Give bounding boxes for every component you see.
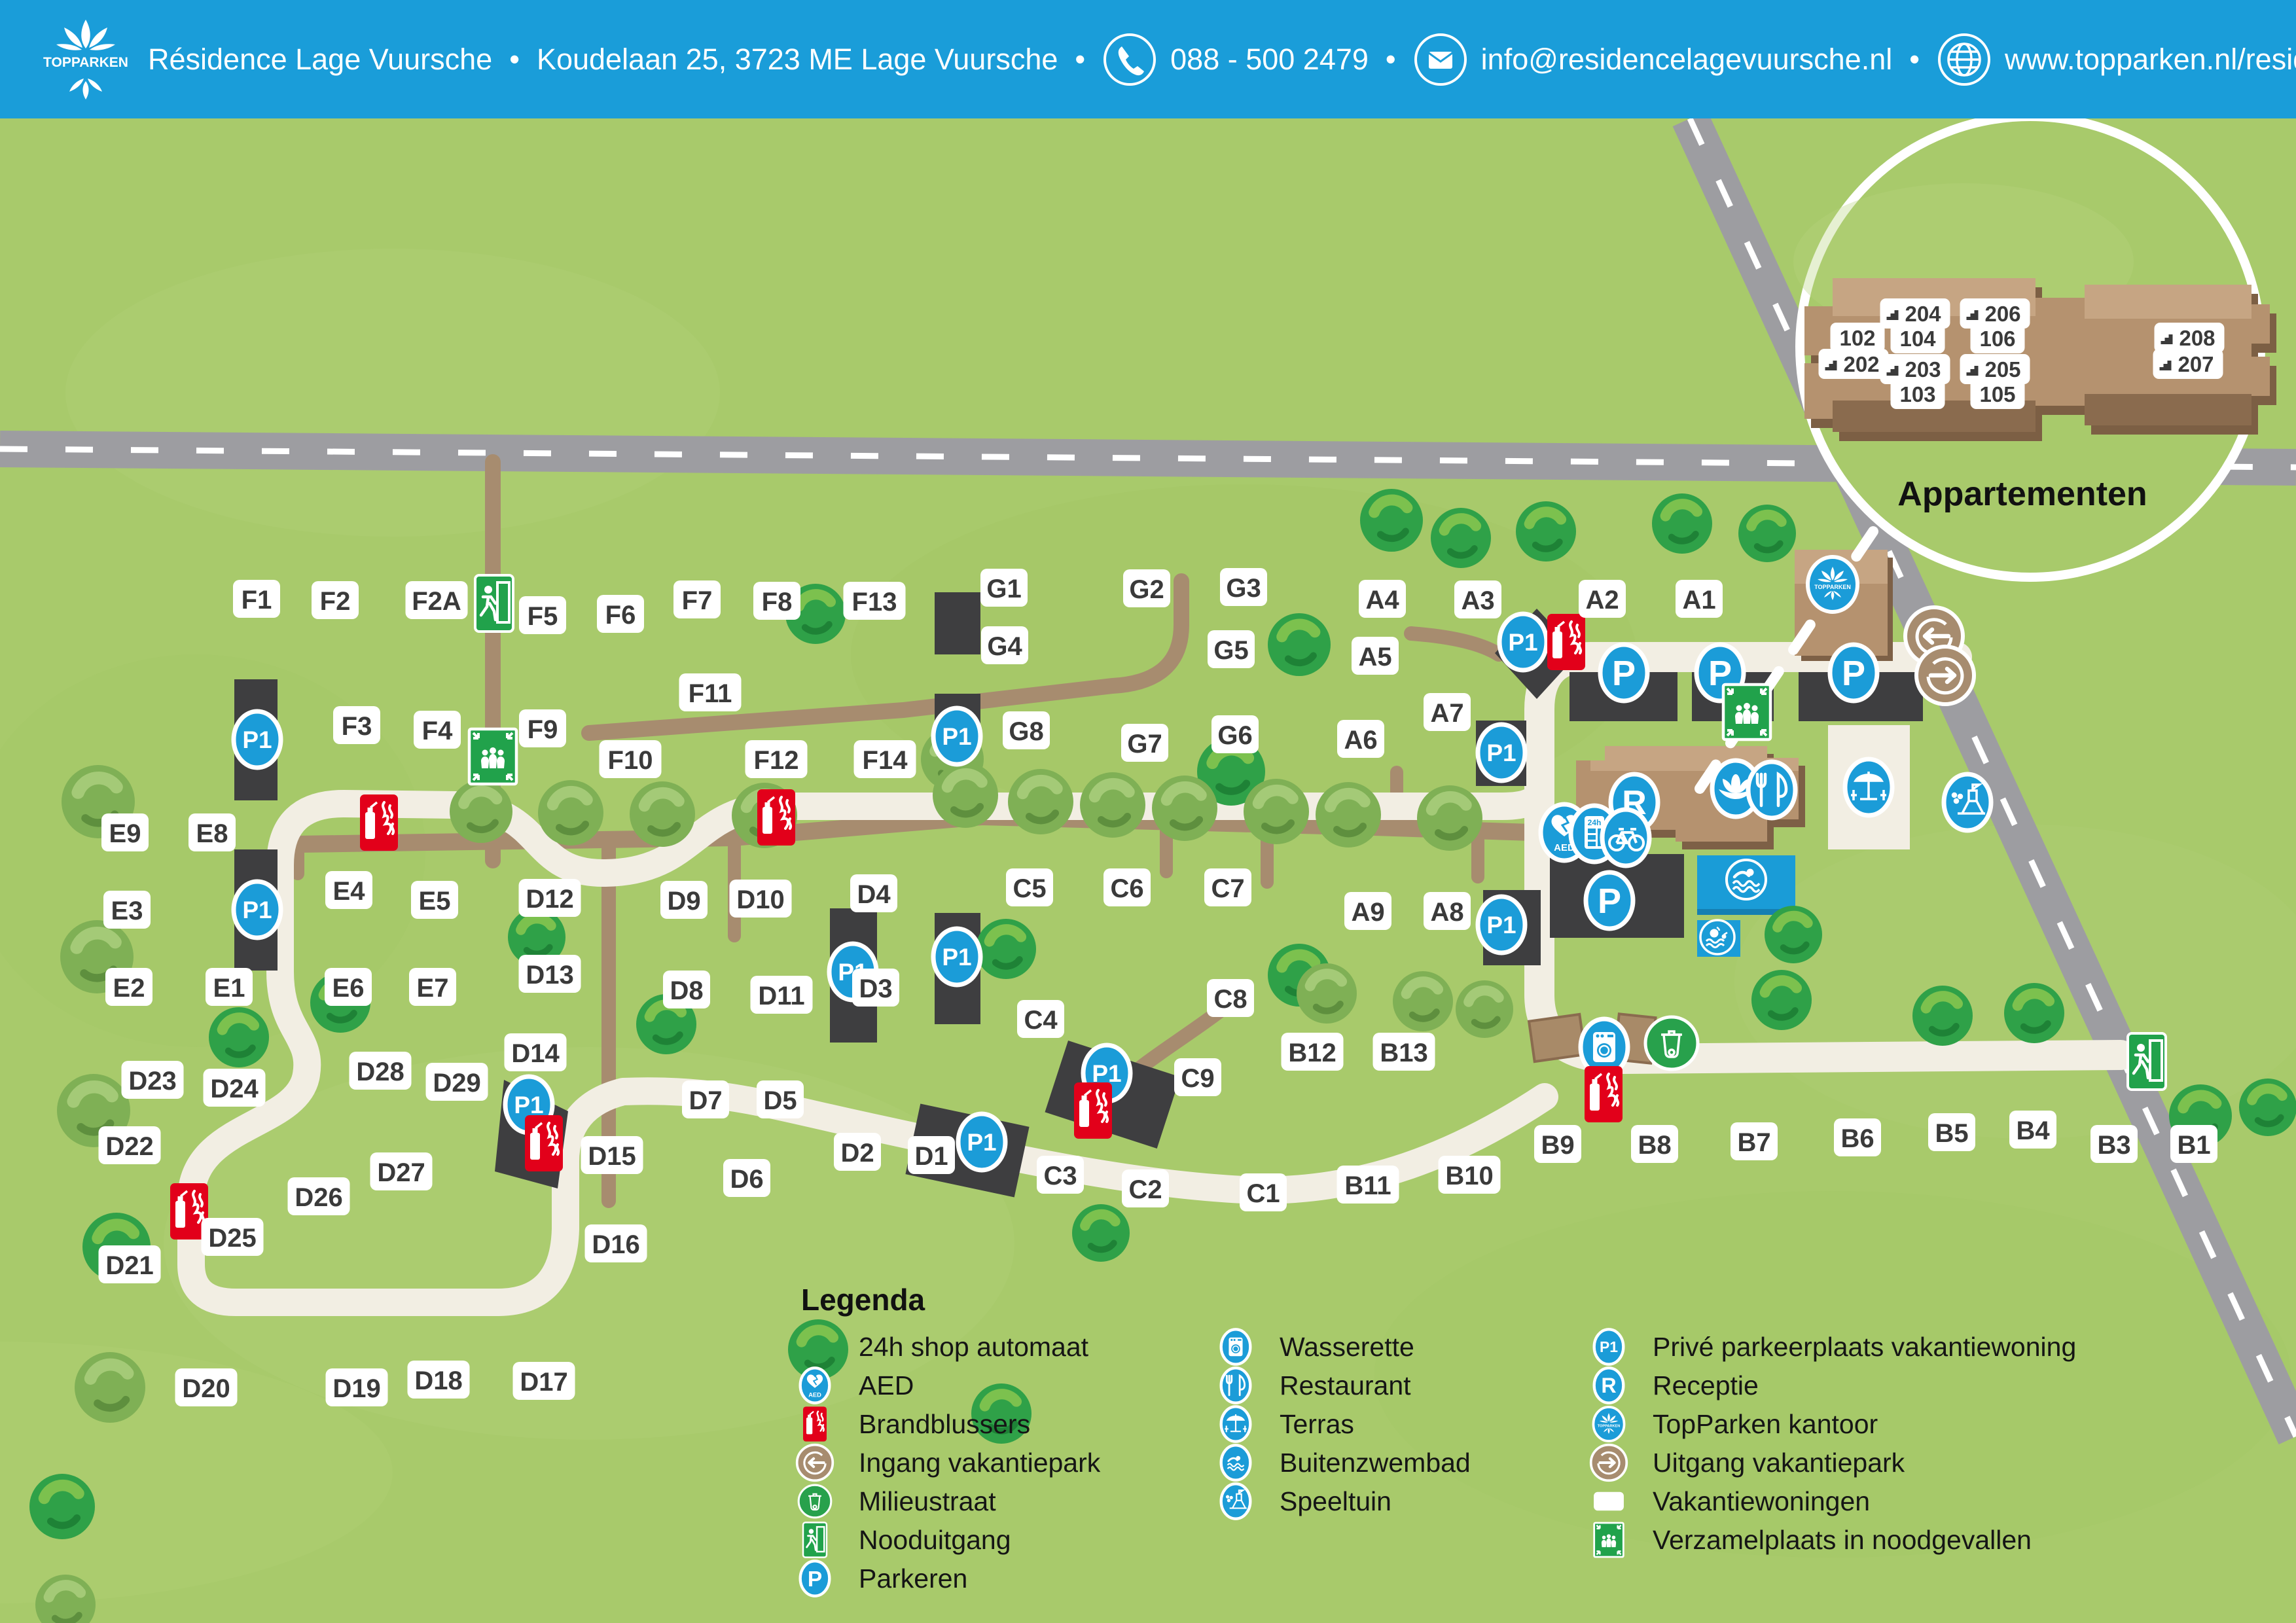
plot-label-E4: E4	[325, 871, 372, 909]
svg-text:B9: B9	[1541, 1131, 1574, 1160]
legend-label: Ingang vakantiepark	[859, 1448, 1101, 1478]
plot-label-B7: B7	[1731, 1122, 1778, 1160]
plot-label-F8: F8	[753, 582, 800, 620]
svg-text:D9: D9	[667, 887, 700, 916]
svg-text:G6: G6	[1217, 721, 1252, 750]
svg-text:G2: G2	[1129, 575, 1164, 604]
p1-icon: P1	[958, 1114, 1005, 1170]
svg-text:E5: E5	[419, 887, 451, 916]
plot-label-D11: D11	[751, 976, 813, 1014]
legend-label: Verzamelplaats in noodgevallen	[1653, 1525, 2032, 1555]
header-bar: TOPPARKEN Résidence Lage Vuursche • Koud…	[0, 0, 2296, 118]
apartment-label-208: 208	[2155, 323, 2225, 353]
svg-text:B5: B5	[1935, 1119, 1968, 1148]
plot-label-C8: C8	[1207, 979, 1254, 1017]
svg-text:B4: B4	[2016, 1116, 2050, 1145]
plot-label-D5: D5	[757, 1080, 804, 1118]
plot-label-F6: F6	[597, 595, 644, 633]
plot-label-B4: B4	[2009, 1111, 2056, 1149]
svg-text:B1: B1	[2177, 1131, 2210, 1160]
tree	[1008, 769, 1073, 834]
legend-label: Privé parkeerplaats vakantiewoning	[1653, 1332, 2076, 1362]
plot-label-F9: F9	[519, 709, 566, 747]
tree	[29, 1474, 95, 1539]
legend-label: Restaurant	[1280, 1370, 1411, 1400]
svg-text:P1: P1	[242, 897, 272, 923]
plot-label-G3: G3	[1220, 568, 1267, 606]
svg-text:F2: F2	[320, 587, 351, 616]
svg-text:F8: F8	[762, 588, 793, 616]
svg-text:G8: G8	[1009, 717, 1043, 746]
plot-label-B3: B3	[2090, 1125, 2138, 1163]
tree	[1072, 1204, 1130, 1262]
plot-label-D16: D16	[585, 1224, 647, 1262]
svg-text:P1: P1	[942, 944, 971, 971]
legend-item: R Receptie	[1594, 1368, 1759, 1402]
svg-text:F7: F7	[682, 586, 713, 615]
svg-text:G7: G7	[1127, 730, 1162, 758]
svg-text:C9: C9	[1181, 1064, 1214, 1093]
svg-text:B11: B11	[1344, 1171, 1391, 1200]
plot-label-E5: E5	[411, 881, 458, 919]
svg-text:D24: D24	[210, 1075, 259, 1103]
svg-text:D3: D3	[859, 974, 892, 1003]
svg-text:C3: C3	[1043, 1162, 1077, 1190]
uitgang-icon	[1591, 1445, 1627, 1481]
plot-label-D14: D14	[505, 1033, 567, 1071]
tree	[1738, 505, 1796, 562]
svg-text:A8: A8	[1430, 898, 1463, 927]
plot-label-C6: C6	[1103, 868, 1151, 906]
plot-label-G1: G1	[980, 569, 1028, 607]
legend-item: P Parkeren	[800, 1561, 968, 1596]
svg-text:P: P	[1842, 654, 1865, 693]
p-icon: P	[1600, 645, 1647, 701]
svg-text:104: 104	[1899, 327, 1936, 351]
svg-text:C8: C8	[1213, 985, 1247, 1014]
svg-text:G1: G1	[986, 575, 1021, 603]
plot-label-G8: G8	[1003, 711, 1050, 749]
legend-label: AED	[859, 1370, 914, 1400]
svg-text:D7: D7	[689, 1086, 722, 1115]
milieu-icon	[798, 1485, 831, 1518]
svg-text:P1: P1	[1600, 1338, 1618, 1355]
topparken-icon: TOPPARKEN	[1593, 1407, 1624, 1441]
brand-icon	[1585, 1066, 1623, 1122]
plot-label-D4: D4	[850, 874, 897, 912]
plot-label-D2: D2	[834, 1133, 881, 1171]
exit-icon	[475, 575, 513, 632]
svg-text:D14: D14	[511, 1039, 560, 1068]
plot-label-B13: B13	[1373, 1033, 1435, 1071]
zwembad-icon	[1221, 1445, 1251, 1480]
svg-text:D5: D5	[763, 1086, 797, 1115]
apartment-label-207: 207	[2153, 349, 2223, 379]
legend-label: Uitgang vakantiepark	[1653, 1448, 1905, 1478]
svg-text:D18: D18	[414, 1366, 462, 1395]
plot-label-F10: F10	[600, 740, 662, 778]
svg-text:E2: E2	[113, 974, 145, 1003]
svg-text:P1: P1	[967, 1129, 996, 1156]
svg-text:C5: C5	[1013, 874, 1046, 903]
tree	[1456, 980, 1513, 1038]
vakantie-icon	[1594, 1492, 1624, 1511]
inset-title: Appartementen	[1897, 475, 2147, 513]
assembly-icon	[1594, 1523, 1624, 1557]
ingang-icon	[797, 1445, 833, 1481]
svg-text:A4: A4	[1365, 586, 1399, 615]
svg-text:F1: F1	[242, 586, 272, 615]
legend-label: TopParken kantoor	[1653, 1409, 1878, 1439]
r-icon: R	[1594, 1368, 1624, 1402]
separator: •	[1386, 43, 1396, 77]
p1-icon: P1	[234, 711, 281, 768]
p1-icon: P1	[1594, 1329, 1624, 1364]
tree	[538, 780, 603, 846]
p-icon: P	[1586, 872, 1633, 929]
svg-text:F11: F11	[689, 679, 732, 708]
svg-text:B8: B8	[1638, 1131, 1671, 1160]
plot-label-D29: D29	[426, 1063, 488, 1101]
restaurant-icon	[1748, 762, 1795, 818]
plot-label-F13: F13	[844, 582, 906, 620]
svg-text:F5: F5	[528, 602, 558, 631]
legend-label: Buitenzwembad	[1280, 1448, 1471, 1478]
plot-label-F1: F1	[233, 580, 280, 618]
svg-text:24h: 24h	[1588, 818, 1602, 827]
aed-icon: AED	[800, 1368, 830, 1402]
tree	[450, 780, 512, 843]
plot-label-C5: C5	[1006, 868, 1053, 906]
legend-label: Wasserette	[1280, 1332, 1414, 1362]
tree	[1268, 613, 1331, 676]
park-name: Résidence Lage Vuursche	[148, 43, 492, 77]
tree	[1152, 776, 1217, 841]
svg-text:F3: F3	[342, 712, 372, 741]
p1-icon: P1	[234, 882, 281, 938]
plot-label-D24: D24	[204, 1069, 266, 1107]
tree	[2004, 983, 2064, 1043]
brand-icon	[803, 1406, 827, 1441]
svg-text:B3: B3	[2097, 1131, 2130, 1160]
exit-icon	[2128, 1033, 2166, 1090]
svg-text:C6: C6	[1110, 874, 1143, 903]
plot-label-G4: G4	[981, 626, 1028, 664]
plot-label-D23: D23	[122, 1061, 184, 1099]
svg-text:B10: B10	[1445, 1162, 1493, 1190]
svg-text:P1: P1	[514, 1092, 543, 1118]
apartment-label-106: 106	[1971, 323, 2025, 353]
svg-text:D10: D10	[736, 885, 784, 914]
phone-number: 088 - 500 2479	[1170, 43, 1369, 77]
email-link[interactable]: info@residencelagevuursche.nl	[1481, 43, 1893, 77]
p1-icon: P1	[1499, 614, 1547, 670]
plot-label-A3: A3	[1454, 580, 1501, 618]
website-link[interactable]: www.topparken.nl/residence-lage-vuursche	[2005, 43, 2296, 77]
plot-label-C1: C1	[1240, 1173, 1287, 1211]
svg-text:D23: D23	[128, 1067, 176, 1096]
svg-text:B6: B6	[1840, 1124, 1874, 1153]
plot-label-D1: D1	[908, 1136, 955, 1174]
plot-label-D17: D17	[513, 1362, 575, 1400]
svg-text:E9: E9	[109, 819, 141, 848]
svg-text:D13: D13	[526, 961, 573, 990]
svg-text:F13: F13	[852, 588, 897, 616]
legend-label: Speeltuin	[1280, 1486, 1391, 1516]
plot-label-F11: F11	[679, 673, 742, 711]
plot-label-D12: D12	[519, 879, 581, 917]
svg-text:E3: E3	[111, 897, 143, 925]
tree	[2239, 1079, 2296, 1136]
legend-label: Milieustraat	[859, 1486, 996, 1516]
svg-text:203: 203	[1905, 357, 1941, 382]
svg-text:TOPPARKEN: TOPPARKEN	[43, 55, 128, 70]
svg-text:D4: D4	[857, 880, 891, 909]
svg-text:B12: B12	[1288, 1039, 1336, 1067]
legend-label: Vakantiewoningen	[1653, 1486, 1870, 1516]
svg-text:P1: P1	[942, 723, 971, 750]
tree	[1431, 508, 1491, 568]
legend-label: 24h shop automaat	[859, 1332, 1089, 1362]
svg-text:F10: F10	[608, 746, 653, 775]
plot-label-A9: A9	[1344, 892, 1391, 930]
svg-text:D25: D25	[208, 1224, 256, 1253]
tree	[1912, 986, 1973, 1046]
plot-label-G6: G6	[1211, 715, 1259, 753]
plot-label-D26: D26	[288, 1177, 350, 1215]
plot-label-B5: B5	[1928, 1113, 1975, 1151]
svg-text:D11: D11	[758, 982, 804, 1010]
plot-label-A2: A2	[1579, 580, 1626, 618]
svg-text:F6: F6	[605, 601, 636, 630]
legend-label: Terras	[1280, 1409, 1354, 1439]
svg-text:D17: D17	[520, 1368, 567, 1397]
svg-text:D1: D1	[914, 1142, 948, 1171]
plot-label-D13: D13	[519, 955, 581, 993]
svg-text:A3: A3	[1461, 586, 1494, 615]
svg-text:C7: C7	[1211, 874, 1244, 903]
svg-text:202: 202	[1843, 352, 1879, 376]
brand-icon	[1547, 614, 1585, 670]
tree	[1393, 971, 1453, 1031]
svg-text:F9: F9	[528, 715, 558, 744]
p1-icon: P1	[1478, 897, 1525, 953]
plot-label-E7: E7	[409, 968, 456, 1006]
plot-label-A5: A5	[1352, 637, 1399, 675]
svg-text:F2A: F2A	[412, 587, 461, 616]
svg-text:D12: D12	[526, 885, 573, 914]
svg-text:B7: B7	[1737, 1128, 1770, 1157]
tree	[1417, 785, 1482, 851]
tree	[1652, 493, 1712, 554]
plot-label-B9: B9	[1534, 1125, 1581, 1163]
uitgang-icon	[1916, 647, 1974, 704]
mail-icon	[1413, 32, 1468, 87]
plot-label-D9: D9	[660, 881, 708, 919]
tree	[933, 762, 998, 828]
svg-text:207: 207	[2178, 352, 2214, 376]
topparken-icon: TOPPARKEN	[1808, 557, 1857, 612]
svg-text:D19: D19	[332, 1374, 380, 1403]
plot-label-F7: F7	[673, 580, 721, 618]
svg-text:D28: D28	[356, 1058, 404, 1086]
plot-label-E2: E2	[105, 968, 152, 1006]
tree	[976, 919, 1036, 979]
tree	[1751, 970, 1812, 1030]
plot-label-A6: A6	[1337, 720, 1384, 758]
svg-text:AED: AED	[808, 1391, 821, 1398]
svg-text:C4: C4	[1024, 1006, 1058, 1035]
svg-text:G3: G3	[1226, 574, 1261, 603]
plot-label-G5: G5	[1208, 630, 1255, 668]
svg-text:208: 208	[2179, 326, 2215, 350]
tree	[1360, 489, 1423, 552]
plot-label-D27: D27	[370, 1152, 433, 1190]
svg-text:F4: F4	[422, 717, 453, 745]
plot-label-D25: D25	[202, 1218, 264, 1256]
tree	[75, 1352, 145, 1423]
svg-text:D15: D15	[588, 1142, 636, 1171]
plot-label-D10: D10	[730, 880, 792, 918]
svg-text:A6: A6	[1344, 726, 1377, 755]
legend-title: Legenda	[801, 1283, 925, 1317]
tree	[1080, 772, 1145, 838]
plot-label-D8: D8	[663, 971, 710, 1008]
plot-label-C2: C2	[1122, 1169, 1169, 1207]
svg-text:D21: D21	[105, 1251, 153, 1280]
terras-icon	[1845, 759, 1892, 815]
plot-label-A1: A1	[1676, 580, 1723, 618]
assembly-icon	[1723, 685, 1770, 740]
plot-label-D21: D21	[99, 1245, 161, 1283]
plot-label-F2: F2	[312, 581, 359, 619]
topparken-logo: TOPPARKEN	[37, 10, 135, 109]
p-icon: P	[1830, 645, 1877, 701]
plot-label-E8: E8	[188, 813, 236, 851]
plot-label-B12: B12	[1282, 1033, 1344, 1071]
svg-text:D29: D29	[433, 1069, 480, 1097]
plot-label-E3: E3	[103, 891, 151, 929]
svg-text:C2: C2	[1128, 1175, 1162, 1204]
svg-text:P1: P1	[242, 726, 272, 753]
park-map: 102 202 204 104 203 103 206 106 205 105 …	[0, 0, 2296, 1623]
playground-icon	[1944, 774, 1991, 830]
plot-label-C9: C9	[1174, 1058, 1221, 1096]
exit-icon	[803, 1522, 827, 1557]
tree	[1297, 963, 1357, 1024]
brand-icon	[757, 789, 795, 846]
svg-text:105: 105	[1979, 382, 2015, 406]
svg-text:R: R	[1601, 1374, 1616, 1397]
svg-text:E7: E7	[417, 974, 449, 1003]
svg-text:TOPPARKEN: TOPPARKEN	[1814, 584, 1851, 590]
plot-label-E6: E6	[325, 968, 372, 1006]
plot-label-B6: B6	[1834, 1118, 1881, 1156]
svg-text:TOPPARKEN: TOPPARKEN	[1598, 1424, 1621, 1428]
svg-text:E8: E8	[196, 819, 228, 848]
svg-text:206: 206	[1984, 302, 2020, 326]
apartment-label-104: 104	[1891, 323, 1945, 353]
plot-label-D28: D28	[350, 1052, 412, 1090]
svg-text:D22: D22	[105, 1132, 153, 1161]
svg-text:E1: E1	[213, 974, 245, 1003]
plot-label-G7: G7	[1121, 724, 1168, 762]
tree	[630, 781, 695, 847]
phone-icon	[1102, 32, 1157, 87]
plot-label-D19: D19	[326, 1368, 388, 1406]
svg-text:P1: P1	[1486, 912, 1516, 938]
brand-icon	[360, 794, 398, 851]
svg-text:E6: E6	[332, 974, 365, 1003]
svg-text:A1: A1	[1682, 586, 1715, 615]
legend-item: Verzamelplaats in noodgevallen	[1594, 1523, 2032, 1557]
p1-icon: P1	[933, 708, 980, 764]
brand-icon	[525, 1115, 563, 1171]
svg-text:G4: G4	[987, 632, 1022, 661]
playground-icon	[1221, 1484, 1251, 1518]
plot-label-G2: G2	[1123, 569, 1170, 607]
svg-text:A9: A9	[1351, 898, 1384, 927]
globe-icon	[1937, 32, 1992, 87]
svg-text:P: P	[1612, 654, 1636, 693]
svg-text:A7: A7	[1430, 699, 1463, 728]
plot-label-E1: E1	[206, 968, 253, 1006]
svg-text:F12: F12	[754, 746, 799, 775]
p1-icon: P1	[1478, 724, 1525, 781]
terras-icon	[1221, 1406, 1251, 1441]
legend-label: Receptie	[1653, 1370, 1759, 1400]
milieu-icon	[1645, 1017, 1698, 1069]
plot-label-D3: D3	[852, 969, 899, 1007]
svg-text:205: 205	[1984, 357, 2020, 382]
plot-label-A4: A4	[1359, 580, 1406, 618]
separator: •	[1909, 43, 1920, 77]
plot-label-D20: D20	[175, 1368, 238, 1406]
legend-item: 24h shop automaat	[859, 1332, 1089, 1362]
plot-label-F12: F12	[745, 740, 808, 778]
apartment-label-103: 103	[1891, 379, 1945, 409]
plot-label-C7: C7	[1204, 868, 1251, 906]
svg-text:D16: D16	[592, 1230, 639, 1259]
tree	[1765, 906, 1822, 963]
apartment-label-105: 105	[1971, 379, 2025, 409]
svg-text:P1: P1	[1508, 629, 1537, 656]
assembly-icon	[469, 729, 516, 784]
legend-item: Terras	[1221, 1406, 1354, 1441]
legend-label: Brandblussers	[859, 1409, 1030, 1439]
legend-label: Parkeren	[859, 1563, 967, 1594]
park-address: Koudelaan 25, 3723 ME Lage Vuursche	[537, 43, 1058, 77]
svg-text:204: 204	[1905, 302, 1941, 326]
svg-text:102: 102	[1839, 326, 1875, 350]
plot-label-F5: F5	[519, 596, 566, 634]
plot-label-F14: F14	[854, 740, 916, 778]
svg-text:A2: A2	[1585, 586, 1619, 615]
svg-text:D2: D2	[840, 1139, 874, 1168]
svg-text:D20: D20	[182, 1374, 230, 1403]
bike-icon	[1602, 810, 1649, 866]
separator: •	[509, 43, 520, 77]
laundry-icon	[1221, 1329, 1251, 1364]
svg-text:G5: G5	[1213, 636, 1248, 665]
legend-item: P1 Privé parkeerplaats vakantiewoning	[1594, 1329, 2077, 1364]
plot-label-F3: F3	[333, 706, 380, 744]
tree	[1316, 782, 1381, 847]
p1-icon: P1	[933, 929, 980, 985]
apartment-label-102: 102	[1831, 323, 1885, 353]
svg-text:106: 106	[1979, 327, 2015, 351]
plot-label-D22: D22	[99, 1126, 161, 1164]
